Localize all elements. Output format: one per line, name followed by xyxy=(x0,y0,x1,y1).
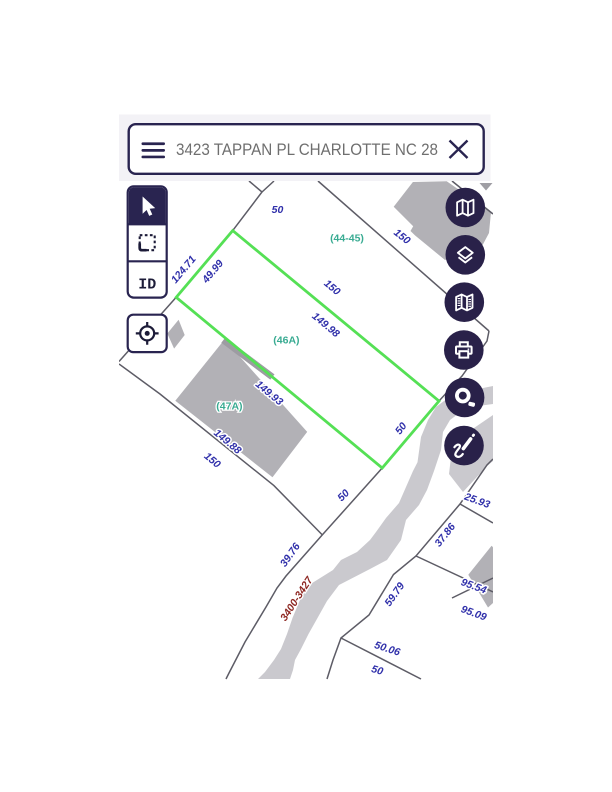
svg-text:(44-45): (44-45) xyxy=(330,232,364,244)
svg-text:3423 TAPPAN PL CHARLOTTE NC 28: 3423 TAPPAN PL CHARLOTTE NC 28 xyxy=(176,141,438,159)
svg-text:ID: ID xyxy=(138,277,156,294)
svg-text:(47A): (47A) xyxy=(216,400,242,412)
svg-text:50: 50 xyxy=(272,204,284,216)
svg-text:(46A): (46A) xyxy=(273,334,299,346)
